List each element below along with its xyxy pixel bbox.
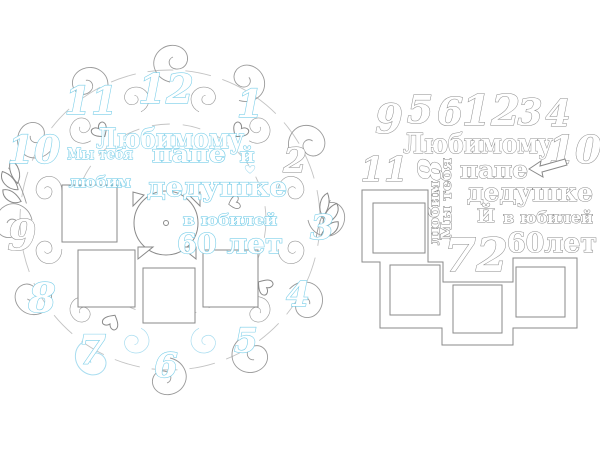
clock-text-v-yubiley: в юбилей — [183, 211, 277, 229]
design-preview-canvas: 12 1 2 3 4 5 6 7 8 9 10 11 Любимому Мы т… — [0, 0, 600, 450]
clock-number-1: 1 — [237, 81, 263, 126]
clock-number-12: 12 — [138, 66, 194, 113]
part-number-6: 6 — [437, 89, 463, 134]
assembled-clock-frame: 12 1 2 3 4 5 6 7 8 9 10 11 Любимому Мы т… — [0, 45, 347, 394]
clock-number-9: 9 — [7, 211, 36, 260]
part-number-5: 5 — [407, 87, 433, 132]
clock-number-3: 3 — [310, 208, 334, 248]
clock-text-my-tebya: Мы тебя — [67, 145, 133, 163]
part-text-lyubim-vertical: любим — [427, 181, 443, 245]
clock-number-5: 5 — [234, 321, 258, 361]
vector-preview: 12 1 2 3 4 5 6 7 8 9 10 11 Любимому Мы т… — [0, 0, 600, 450]
clock-text-pape: папе — [152, 139, 226, 168]
clock-number-11: 11 — [65, 78, 118, 123]
part-number-3: 3 — [517, 92, 542, 134]
part-text-60let: 60лет — [507, 228, 597, 259]
part-text-v-yubiley: в юбилей — [503, 208, 593, 227]
parts-sheet: 9 5 6 12 3 4 Любимому 10 11 8 Мы тебя лю… — [360, 86, 600, 345]
photo-frame — [78, 250, 135, 307]
part-number-11: 11 — [360, 150, 407, 190]
photo-frame — [62, 185, 117, 242]
part-number-12: 12 — [462, 86, 520, 135]
photo-frame — [143, 268, 195, 323]
clock-axle-hole — [164, 221, 169, 226]
clock-number-6: 6 — [154, 346, 178, 386]
photo-frame — [453, 285, 502, 333]
clock-number-7: 7 — [78, 327, 106, 374]
clock-text-60-let: 60 лет — [177, 229, 283, 260]
clock-number-10: 10 — [8, 127, 61, 172]
clock-text-dedushke: дедушке — [147, 173, 287, 203]
photo-frame — [390, 265, 440, 315]
photo-frame — [516, 267, 565, 317]
corner-wedge — [138, 247, 153, 259]
clock-text-lyubim: любим — [69, 173, 131, 191]
part-number-9: 9 — [375, 96, 403, 143]
clock-text-i: й — [240, 143, 255, 167]
part-text-dedushke: дедушке — [467, 178, 593, 207]
part-text-i: Й — [477, 203, 495, 227]
clock-number-8: 8 — [27, 275, 56, 322]
part-number-72: 72 — [444, 228, 508, 282]
photo-frame — [373, 203, 425, 253]
clock-number-4: 4 — [286, 275, 310, 315]
